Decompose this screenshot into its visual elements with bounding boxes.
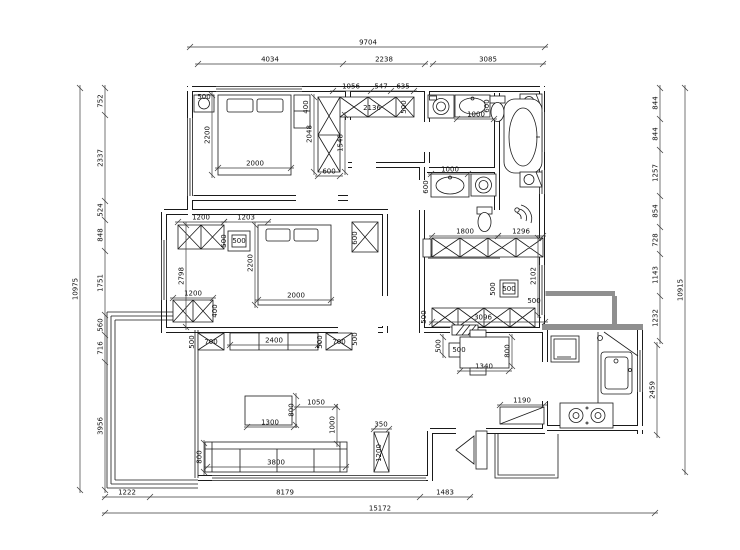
svg-text:500: 500 [420, 310, 428, 323]
svg-text:2459: 2459 [649, 381, 657, 399]
furniture [173, 94, 638, 478]
floor-plan-drawing: 9704403422383085105654763510975752233752… [0, 0, 740, 550]
svg-text:2200: 2200 [204, 126, 212, 144]
svg-text:400: 400 [302, 100, 310, 113]
svg-text:600: 600 [351, 231, 359, 244]
svg-text:844: 844 [652, 127, 660, 141]
svg-text:500: 500 [232, 237, 245, 245]
svg-text:2337: 2337 [97, 149, 105, 167]
window-bed2-west [161, 240, 168, 300]
svg-text:560: 560 [97, 318, 105, 331]
shower-head-icon [515, 205, 532, 223]
bathtub [504, 99, 542, 173]
svg-text:500: 500 [351, 332, 359, 345]
svg-text:1050: 1050 [307, 399, 325, 407]
window-kitchen-east [637, 350, 644, 392]
svg-text:1483: 1483 [436, 489, 454, 497]
svg-text:635: 635 [396, 83, 409, 91]
washing-machine-2 [471, 174, 496, 196]
svg-text:2798: 2798 [178, 267, 186, 285]
svg-text:500: 500 [435, 339, 443, 352]
window-master-north [216, 86, 302, 93]
corner-basin-2 [520, 172, 542, 187]
svg-text:524: 524 [97, 203, 105, 217]
fridge [551, 336, 579, 362]
window-master-west [187, 118, 194, 196]
svg-text:2136: 2136 [363, 104, 381, 112]
svg-text:500: 500 [400, 100, 408, 113]
floor-plan-canvas: 9704403422383085105654763510975752233752… [0, 0, 740, 550]
svg-text:2400: 2400 [265, 337, 283, 345]
svg-text:854: 854 [652, 204, 660, 218]
svg-text:500: 500 [197, 93, 210, 101]
svg-text:716: 716 [97, 341, 105, 355]
svg-text:500: 500 [489, 282, 497, 295]
toilet-bath1 [490, 96, 505, 122]
svg-text:1232: 1232 [652, 309, 660, 327]
toilet-bath2 [477, 207, 492, 232]
svg-text:400: 400 [211, 304, 219, 317]
svg-text:547: 547 [374, 83, 387, 91]
svg-text:3800: 3800 [267, 459, 285, 467]
svg-text:800: 800 [504, 344, 512, 357]
svg-text:2048: 2048 [306, 125, 314, 143]
svg-text:700: 700 [204, 338, 217, 346]
svg-text:1200: 1200 [184, 290, 202, 298]
svg-text:3096: 3096 [474, 314, 492, 322]
svg-text:1300: 1300 [261, 419, 279, 427]
window-storage-east [539, 265, 546, 315]
svg-text:2102: 2102 [530, 267, 538, 285]
svg-text:350: 350 [374, 421, 387, 429]
svg-text:728: 728 [652, 233, 660, 246]
svg-text:1800: 1800 [456, 228, 474, 236]
svg-text:10915: 10915 [677, 279, 685, 301]
svg-text:752: 752 [97, 94, 105, 107]
svg-text:15172: 15172 [369, 505, 391, 513]
svg-text:500: 500 [316, 335, 324, 348]
svg-text:1000: 1000 [329, 416, 337, 434]
svg-text:2000: 2000 [287, 292, 305, 300]
svg-text:600: 600 [483, 99, 491, 112]
svg-text:800: 800 [196, 450, 204, 463]
svg-text:1296: 1296 [512, 228, 530, 236]
svg-text:4034: 4034 [261, 56, 279, 64]
svg-text:1000: 1000 [441, 166, 459, 174]
svg-text:500: 500 [188, 335, 196, 348]
entry-door [456, 431, 487, 469]
svg-text:500: 500 [220, 234, 228, 247]
sofa [205, 442, 347, 472]
svg-text:1257: 1257 [652, 164, 660, 182]
svg-text:500: 500 [527, 297, 540, 305]
svg-text:848: 848 [97, 228, 105, 241]
svg-text:600: 600 [422, 180, 430, 193]
sink-bath2 [431, 174, 469, 197]
svg-text:9704: 9704 [359, 39, 377, 47]
svg-text:1222: 1222 [118, 489, 136, 497]
svg-text:1200: 1200 [375, 444, 383, 462]
svg-text:2000: 2000 [246, 160, 264, 168]
svg-text:600: 600 [322, 168, 335, 176]
svg-text:3085: 3085 [479, 56, 497, 64]
svg-text:1548: 1548 [337, 134, 345, 152]
svg-text:1751: 1751 [97, 274, 105, 292]
washing-machine [428, 95, 454, 118]
window-living-south [212, 475, 426, 482]
svg-text:1340: 1340 [475, 363, 493, 371]
svg-text:700: 700 [332, 338, 345, 346]
svg-text:1203: 1203 [237, 214, 255, 222]
entry-porch [495, 434, 558, 478]
svg-text:844: 844 [652, 96, 660, 110]
stove [560, 403, 613, 428]
svg-text:2238: 2238 [375, 56, 393, 64]
svg-text:3956: 3956 [97, 417, 105, 435]
svg-text:1190: 1190 [513, 397, 531, 405]
svg-text:1143: 1143 [652, 266, 660, 284]
svg-text:500: 500 [502, 285, 515, 293]
svg-text:10975: 10975 [72, 278, 80, 300]
balcony-bay-window [107, 312, 198, 488]
kitchen-sink [601, 352, 632, 394]
svg-text:1200: 1200 [192, 214, 210, 222]
svg-text:8179: 8179 [276, 489, 294, 497]
shoe-cabinet [500, 407, 544, 424]
svg-text:2200: 2200 [247, 254, 255, 272]
svg-text:500: 500 [452, 346, 465, 354]
svg-text:1056: 1056 [342, 83, 360, 91]
